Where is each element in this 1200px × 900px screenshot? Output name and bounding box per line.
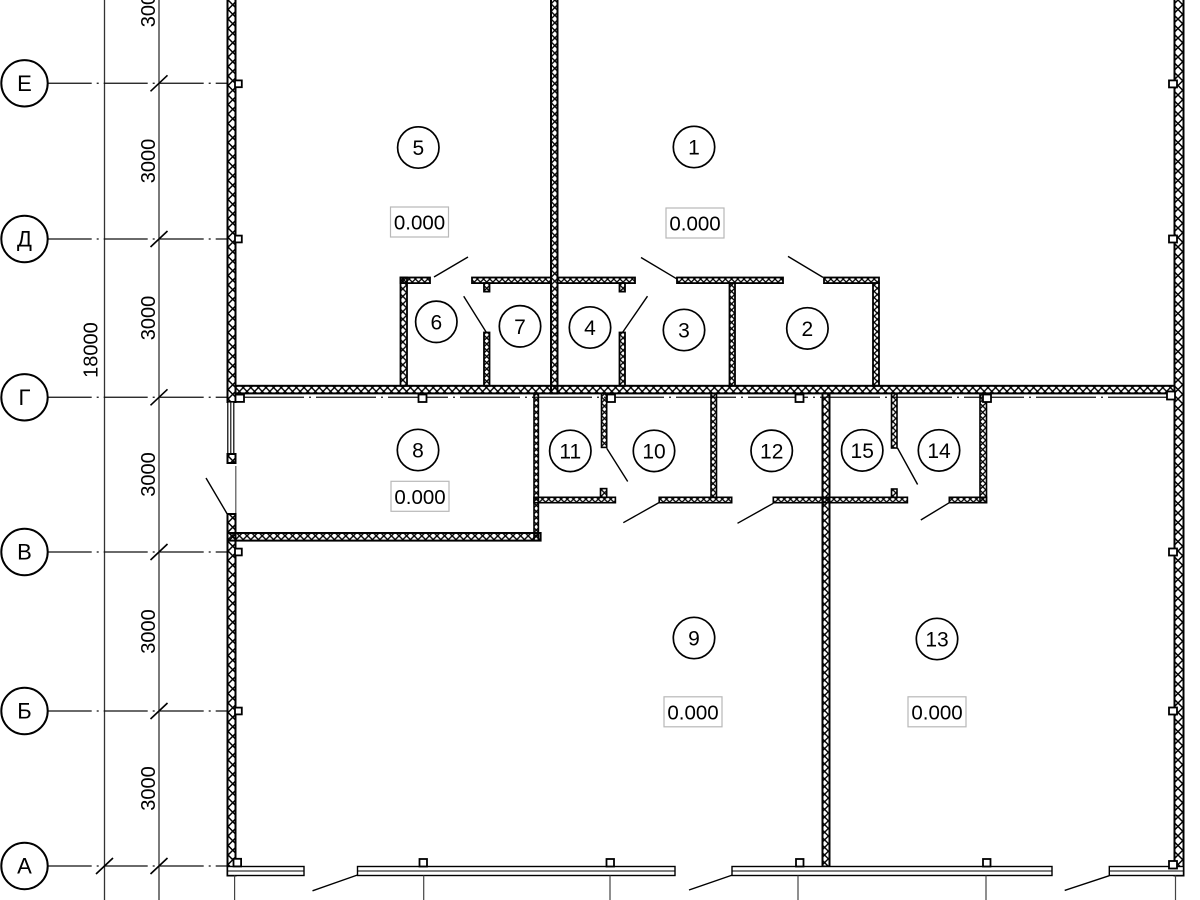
svg-text:0.000: 0.000 — [669, 213, 720, 236]
svg-text:В: В — [17, 540, 32, 565]
svg-text:0.000: 0.000 — [667, 701, 718, 724]
svg-text:14: 14 — [927, 440, 951, 463]
svg-text:3000: 3000 — [138, 0, 160, 27]
svg-text:11: 11 — [559, 440, 581, 463]
svg-text:2: 2 — [802, 318, 814, 341]
svg-text:0.000: 0.000 — [394, 212, 445, 235]
svg-text:1: 1 — [688, 137, 700, 160]
svg-text:5: 5 — [412, 137, 424, 160]
svg-text:7: 7 — [514, 316, 526, 339]
svg-text:10: 10 — [642, 440, 665, 463]
svg-text:18000: 18000 — [81, 322, 103, 378]
svg-text:3000: 3000 — [138, 766, 160, 811]
svg-text:13: 13 — [925, 629, 948, 652]
svg-text:Б: Б — [17, 699, 31, 724]
svg-text:3: 3 — [678, 320, 690, 343]
svg-text:8: 8 — [412, 440, 424, 463]
svg-text:0.000: 0.000 — [394, 486, 445, 509]
svg-text:6: 6 — [430, 311, 442, 334]
svg-text:Г: Г — [19, 385, 31, 410]
svg-text:Д: Д — [17, 227, 32, 252]
svg-text:3000: 3000 — [138, 609, 160, 654]
svg-text:12: 12 — [760, 440, 783, 463]
svg-text:3000: 3000 — [138, 296, 160, 341]
svg-text:А: А — [17, 854, 32, 879]
svg-text:9: 9 — [688, 628, 700, 651]
svg-text:Е: Е — [17, 71, 32, 96]
svg-text:3000: 3000 — [138, 139, 160, 184]
svg-text:15: 15 — [851, 440, 874, 463]
svg-text:0.000: 0.000 — [911, 701, 962, 724]
svg-text:3000: 3000 — [138, 452, 160, 497]
svg-text:4: 4 — [584, 317, 596, 340]
